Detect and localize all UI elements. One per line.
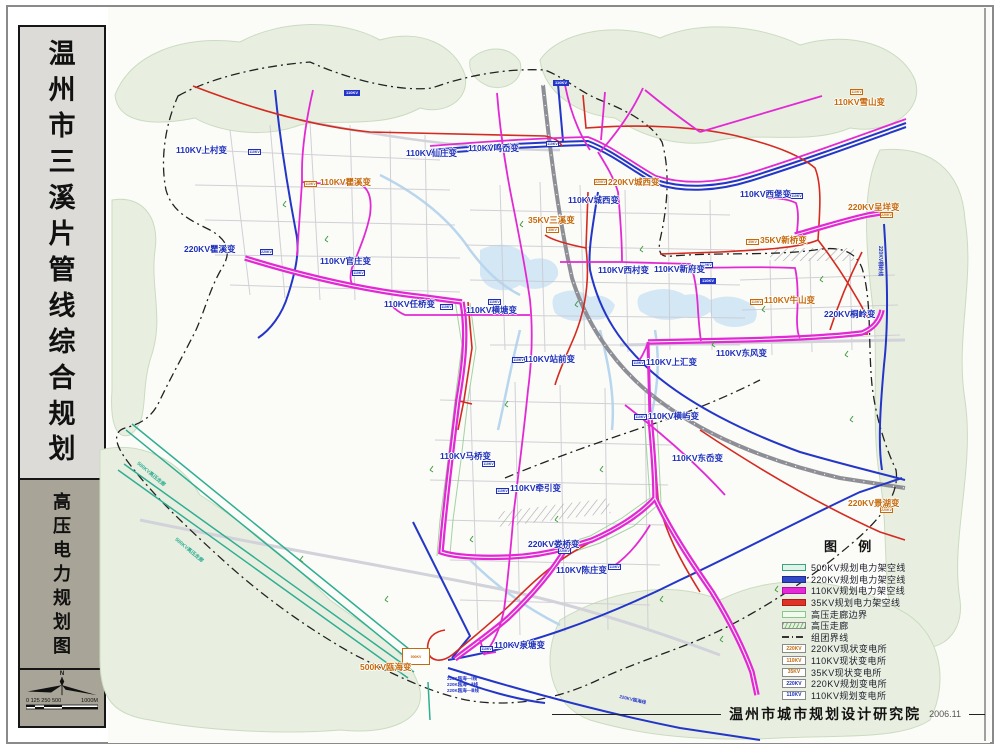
substation-label: 110KV横塘变 xyxy=(466,306,517,315)
line-name-tag: 110KV xyxy=(700,278,716,284)
legend-swatch-subE: 35KV xyxy=(782,668,806,677)
legend-label: 110KV规划变电所 xyxy=(811,689,886,702)
substation-label: 110KV泉塘变 xyxy=(494,641,545,650)
legend-row: 110KV110KV现状变电所 xyxy=(782,655,906,667)
line-name-tag: 110KV xyxy=(344,90,360,96)
legend-swatch-cluster xyxy=(782,636,806,638)
legend: 图 例 500KV规划电力架空线220KV规划电力架空线110KV规划电力架空线… xyxy=(782,536,906,701)
substation-label: 220KV呈垟变 xyxy=(848,203,900,212)
substation-label: 220KV景湖变 xyxy=(848,499,900,508)
line-name-tag: 110KV xyxy=(553,80,569,86)
legend-row: 110KV规划电力架空线 xyxy=(782,585,906,597)
substation-marker: 220KV xyxy=(594,179,607,185)
legend-swatch-subP: 110KV xyxy=(782,691,806,700)
corridor-annotation: 220KV桐岭线 xyxy=(877,246,884,276)
substation-marker: 110KV xyxy=(480,646,493,652)
substation-label: 110KV上村变 xyxy=(176,146,227,155)
substation-marker: 220KV xyxy=(880,212,893,218)
substation-label: 110KV鸣岙变 xyxy=(468,144,519,153)
substation-label: 110KV牵引变 xyxy=(510,484,561,493)
legend-swatch-corr xyxy=(782,622,806,629)
substation-marker: 110KV xyxy=(482,461,495,467)
substation-marker: 110KV xyxy=(750,299,763,305)
substation-label: 110KV新府变 xyxy=(654,265,705,274)
substation-label: 110KV陈庄变 xyxy=(556,566,607,575)
legend-swatch-b220 xyxy=(782,576,806,583)
substation-label: 110KV东风变 xyxy=(716,349,767,358)
substation-label: 110KV东岙变 xyxy=(672,454,723,463)
substation-label: 110KV横屿变 xyxy=(648,412,699,421)
legend-swatch-subP: 220KV xyxy=(782,679,806,688)
legend-row: 500KV规划电力架空线 xyxy=(782,562,906,574)
substation-marker: 110KV xyxy=(634,414,647,420)
substation-label: 220KV娄桥变 xyxy=(528,540,580,549)
legend-row: 35KV35KV现状变电所 xyxy=(782,666,906,678)
substation-label: 110KV牛山变 xyxy=(764,296,815,305)
legend-swatch-cedge xyxy=(782,611,806,618)
substation-marker: 110KV xyxy=(632,360,645,366)
substation-marker: 35KV xyxy=(746,239,759,245)
legend-row: 组团界线 xyxy=(782,632,906,644)
legend-swatch-subE: 220KV xyxy=(782,644,806,653)
substation-label: 110KV西堡变 xyxy=(740,190,791,199)
corridor-annotation: 500KV高压走廊 xyxy=(174,536,206,564)
substation-label: 35KV三溪变 xyxy=(528,216,575,225)
legend-swatch-b500 xyxy=(782,564,806,571)
substation-label: 110KV仙庄变 xyxy=(406,149,457,158)
legend-row: 220KV220KV现状变电所 xyxy=(782,643,906,655)
substation-marker: 220KV xyxy=(260,249,273,255)
substation-label: 35KV新桥变 xyxy=(760,236,807,245)
substation-marker: 35KV xyxy=(546,227,559,233)
substation-label: 110KV官庄变 xyxy=(320,257,371,266)
legend-items: 500KV规划电力架空线220KV规划电力架空线110KV规划电力架空线35KV… xyxy=(782,562,906,701)
substation-label: 110KV西村变 xyxy=(598,266,649,275)
substation-label: 220KV城西变 xyxy=(608,178,660,187)
legend-row: 高压走廊边界 xyxy=(782,608,906,620)
legend-row: 高压走廊 xyxy=(782,620,906,632)
footer-rule-left xyxy=(552,714,721,715)
substation-marker: 110KV xyxy=(850,89,863,95)
substation-marker: 110KV xyxy=(304,181,317,187)
substation-label: 220KV桐岭变 xyxy=(824,310,876,319)
substation-label: 110KV城西变 xyxy=(568,196,619,205)
substation-marker: 110KV xyxy=(440,304,453,310)
footer-credit: 温州市城市规划设计研究院 xyxy=(729,704,921,724)
substation-label: 110KV马桥变 xyxy=(440,452,491,461)
footer-rule-right xyxy=(969,714,985,715)
substation-label: 110KV站前变 xyxy=(524,355,575,364)
legend-swatch-b110 xyxy=(782,587,806,594)
legend-row: 220KV220KV规划变电所 xyxy=(782,678,906,690)
substation-marker: 110KV xyxy=(546,141,559,147)
substation-marker: 110KV xyxy=(608,564,621,570)
footer: 温州市城市规划设计研究院 2006.11 xyxy=(552,704,985,724)
legend-row: 35KV规划电力架空线 xyxy=(782,597,906,609)
substation-label: 500KV瓯海变 xyxy=(360,663,412,672)
substation-label: 220KV瞿溪变 xyxy=(184,245,236,254)
corridor-annotation: 500KV高压走廊 xyxy=(136,460,168,488)
substation-marker: 110KV xyxy=(248,149,261,155)
substation-label: 110KV上汇变 xyxy=(646,358,697,367)
legend-swatch-subE: 110KV xyxy=(782,656,806,665)
corridor-annotation: 220K瓯海—Ⅲ线 xyxy=(447,688,479,694)
footer-date: 2006.11 xyxy=(929,709,961,719)
legend-row: 220KV规划电力架空线 xyxy=(782,574,906,586)
legend-swatch-b35 xyxy=(782,599,806,606)
substation-label: 110KV雪山变 xyxy=(834,98,885,107)
legend-row: 110KV110KV规划变电所 xyxy=(782,690,906,702)
substation-label: 110KV瞿溪变 xyxy=(320,178,371,187)
legend-title: 图 例 xyxy=(824,536,906,555)
map-sheet: 110KV110KV上村变110KV仙庄变110KV110KV鸣岙变220KV2… xyxy=(0,0,1000,750)
substation-marker: 110KV xyxy=(790,193,803,199)
substation-marker: 110KV xyxy=(496,488,509,494)
substation-marker: 110KV xyxy=(352,270,365,276)
substation-label: 110KV任桥变 xyxy=(384,300,435,309)
